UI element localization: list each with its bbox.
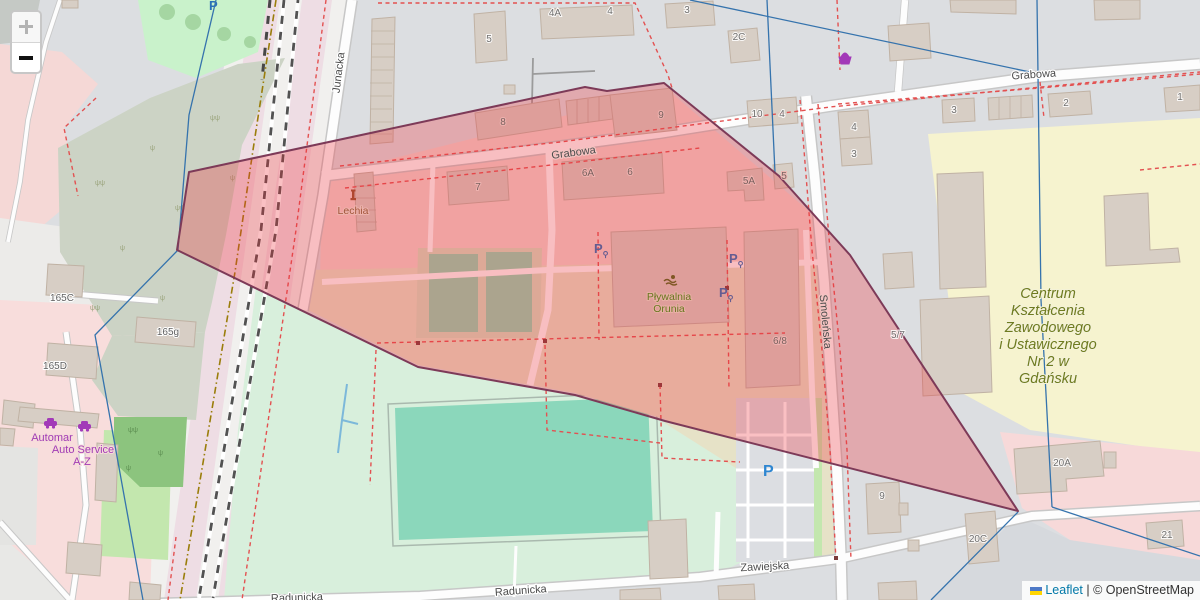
svg-text:ψ: ψ <box>150 145 155 152</box>
svg-text:P: P <box>763 463 774 480</box>
svg-text:4: 4 <box>779 109 785 120</box>
svg-text:Radunicka: Radunicka <box>271 591 324 600</box>
svg-text:Centrum: Centrum <box>1020 286 1076 302</box>
svg-text:5A: 5A <box>743 176 756 187</box>
svg-text:ψψ: ψψ <box>95 180 105 187</box>
svg-text:ψψ: ψψ <box>90 305 100 312</box>
svg-text:4: 4 <box>607 6 613 17</box>
svg-text:Kształcenia: Kształcenia <box>1011 303 1085 319</box>
svg-text:Zawodowego: Zawodowego <box>1004 320 1091 336</box>
svg-text:4: 4 <box>851 122 857 133</box>
svg-text:6A: 6A <box>582 168 595 179</box>
svg-text:21: 21 <box>1161 530 1173 541</box>
svg-text:A-Z: A-Z <box>73 456 91 468</box>
svg-text:4A: 4A <box>549 8 562 19</box>
svg-text:1: 1 <box>1177 92 1183 103</box>
svg-text:ψ: ψ <box>120 245 125 252</box>
svg-text:165C: 165C <box>50 293 74 304</box>
svg-text:Orunia: Orunia <box>653 303 685 315</box>
svg-text:ψ: ψ <box>126 465 131 472</box>
svg-text:5: 5 <box>486 34 492 45</box>
svg-text:2: 2 <box>1063 98 1069 109</box>
svg-text:3: 3 <box>684 5 690 16</box>
svg-text:7: 7 <box>475 182 481 193</box>
svg-text:Gdańsku: Gdańsku <box>1019 371 1077 387</box>
svg-text:5/7: 5/7 <box>891 330 905 341</box>
svg-text:2C: 2C <box>733 32 746 43</box>
svg-text:6/8: 6/8 <box>773 336 787 347</box>
svg-text:10: 10 <box>751 109 763 120</box>
svg-text:ψ: ψ <box>160 295 165 302</box>
svg-text:Auto Service: Auto Service <box>52 444 114 456</box>
svg-text:ψ: ψ <box>158 450 163 457</box>
svg-text:8: 8 <box>500 117 506 128</box>
svg-text:i Ustawicznego: i Ustawicznego <box>999 337 1097 353</box>
svg-text:3: 3 <box>851 149 857 160</box>
svg-text:3: 3 <box>951 105 957 116</box>
svg-text:Lechia: Lechia <box>338 205 369 217</box>
svg-text:20C: 20C <box>969 534 987 545</box>
svg-text:6: 6 <box>627 167 633 178</box>
svg-text:20A: 20A <box>1053 458 1071 469</box>
svg-text:9: 9 <box>658 110 664 121</box>
svg-text:ψψ: ψψ <box>128 427 138 434</box>
svg-text:Nr 2 w: Nr 2 w <box>1027 354 1070 370</box>
svg-text:ψψ: ψψ <box>210 115 220 122</box>
svg-text:5: 5 <box>781 171 787 182</box>
svg-text:Automar: Automar <box>31 432 73 444</box>
svg-text:165D: 165D <box>43 361 67 372</box>
svg-text:165g: 165g <box>157 327 179 338</box>
svg-text:Pływalnia: Pływalnia <box>647 291 692 303</box>
svg-text:9: 9 <box>879 491 885 502</box>
